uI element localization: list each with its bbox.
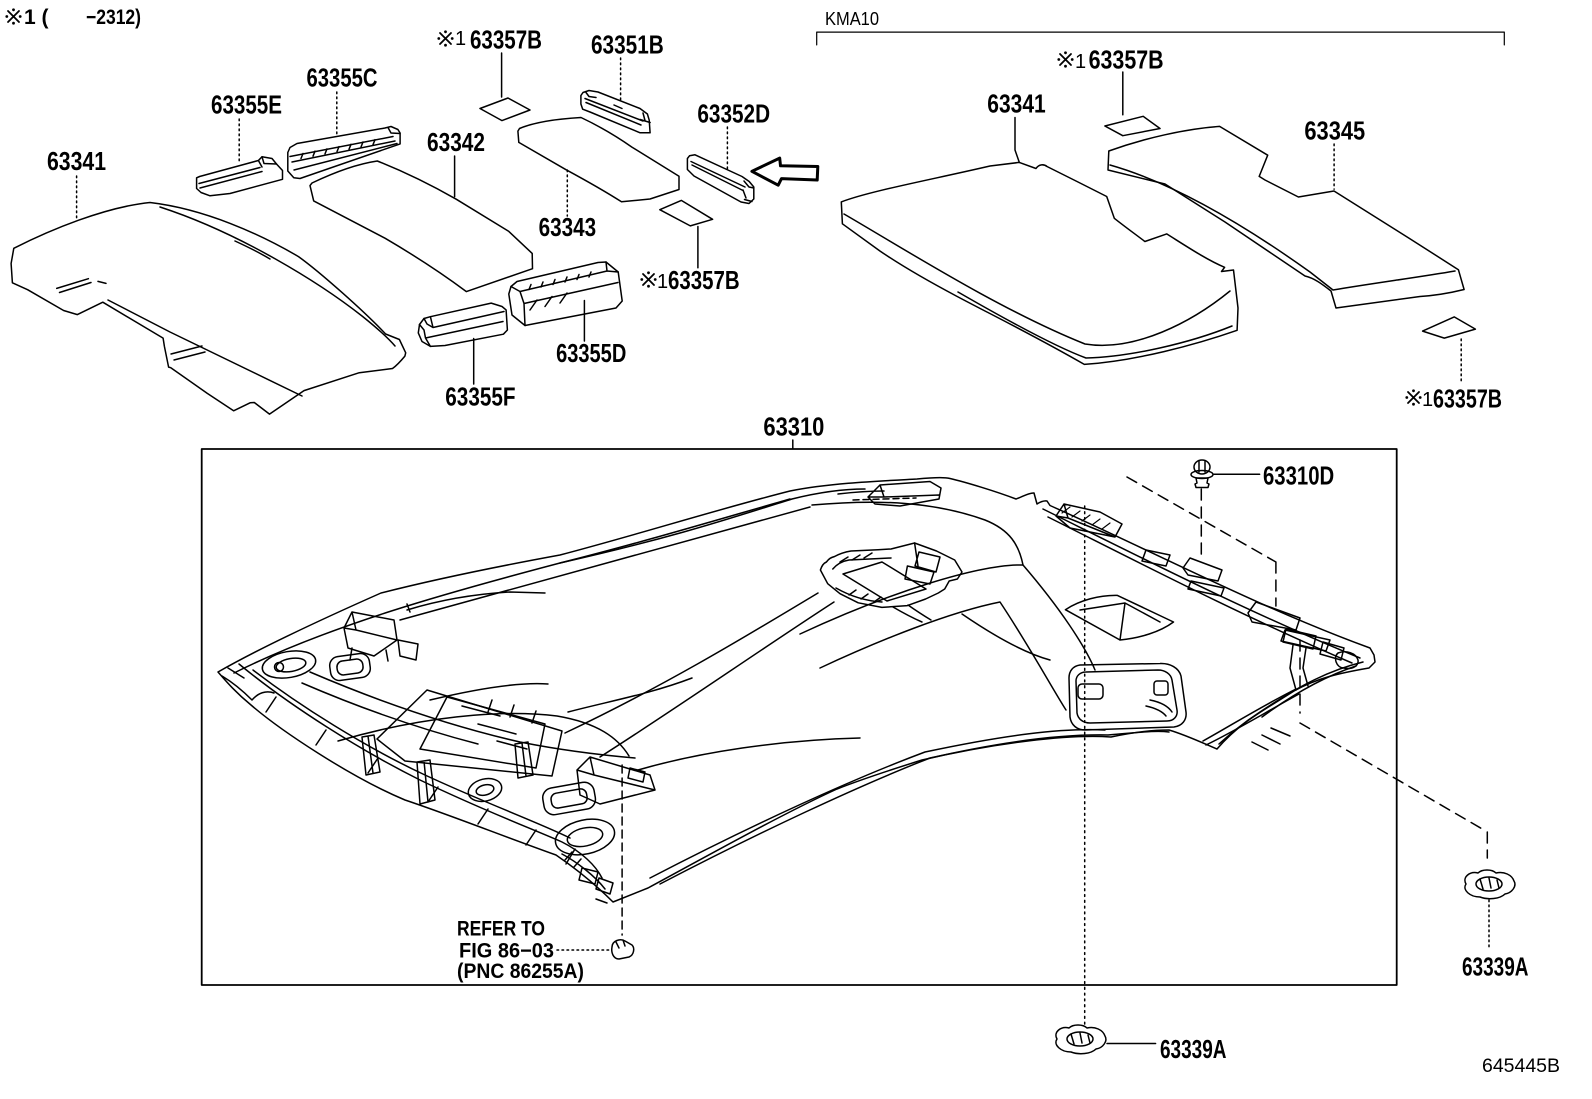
svg-text:1: 1 <box>1075 51 1086 73</box>
svg-text:(PNC 86255A): (PNC 86255A) <box>457 960 584 983</box>
svg-text:1: 1 <box>1422 389 1433 411</box>
svg-text:1: 1 <box>657 271 668 293</box>
svg-text:63310D: 63310D <box>1263 460 1334 490</box>
svg-text:1 (: 1 ( <box>24 6 49 29</box>
svg-text:63351B: 63351B <box>591 30 664 60</box>
svg-text:63341: 63341 <box>987 88 1045 118</box>
svg-text:1: 1 <box>455 28 466 50</box>
svg-text:63357B: 63357B <box>668 265 740 295</box>
svg-text:63339A: 63339A <box>1462 952 1529 982</box>
svg-text:REFER TO: REFER TO <box>457 918 545 941</box>
svg-text:63345: 63345 <box>1304 115 1365 145</box>
svg-text:63355E: 63355E <box>211 90 282 120</box>
svg-text:63357B: 63357B <box>1089 45 1164 75</box>
svg-text:63352D: 63352D <box>697 98 770 128</box>
svg-text:63341: 63341 <box>47 146 106 176</box>
svg-text:KMA10: KMA10 <box>825 9 879 29</box>
svg-text:645445B: 645445B <box>1482 1056 1560 1077</box>
svg-text:63355C: 63355C <box>307 63 378 93</box>
svg-text:63339A: 63339A <box>1160 1034 1227 1064</box>
svg-text:63355F: 63355F <box>445 381 515 411</box>
svg-text:63310: 63310 <box>763 411 824 441</box>
svg-text:63342: 63342 <box>427 127 485 157</box>
svg-text:63355D: 63355D <box>556 338 626 368</box>
svg-text:63357B: 63357B <box>1433 384 1502 414</box>
svg-text:63357B: 63357B <box>470 25 542 55</box>
svg-text:−2312): −2312) <box>86 6 141 29</box>
